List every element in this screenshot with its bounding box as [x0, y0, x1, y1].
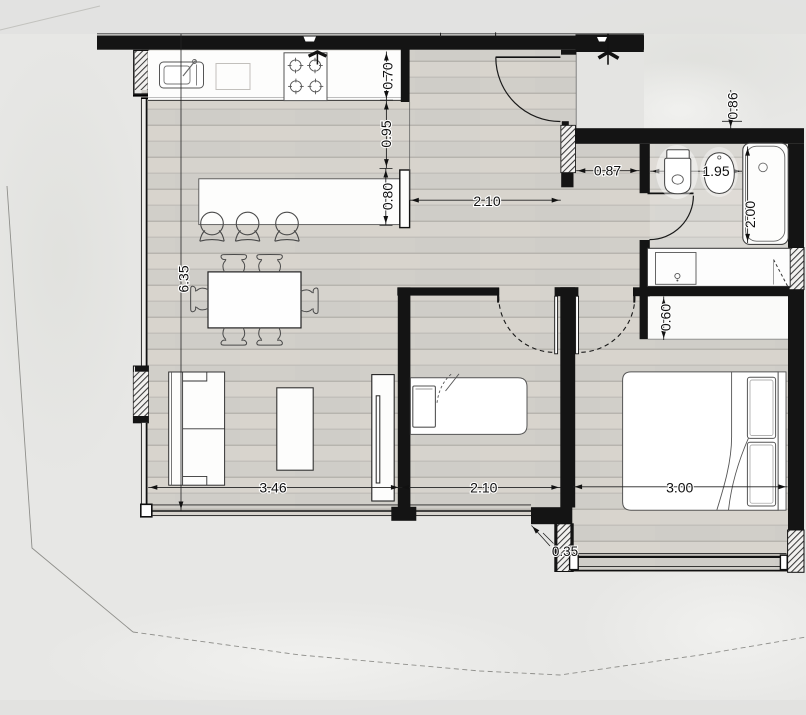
svg-text:0.95: 0.95	[378, 120, 394, 147]
svg-text:0.35: 0.35	[552, 544, 578, 559]
svg-text:0.87: 0.87	[594, 163, 621, 179]
svg-text:6.35: 6.35	[176, 265, 192, 292]
svg-text:0.70: 0.70	[380, 62, 396, 89]
svg-text:2.10: 2.10	[470, 479, 497, 495]
svg-text:0.60: 0.60	[658, 304, 674, 331]
svg-text:3.00: 3.00	[666, 479, 693, 495]
svg-text:3.46: 3.46	[259, 479, 286, 495]
svg-text:0.80: 0.80	[380, 183, 396, 210]
svg-text:2.10: 2.10	[473, 193, 500, 209]
svg-text:0.86: 0.86	[725, 92, 741, 119]
svg-text:1.95: 1.95	[702, 163, 729, 179]
svg-text:2.00: 2.00	[742, 201, 758, 228]
